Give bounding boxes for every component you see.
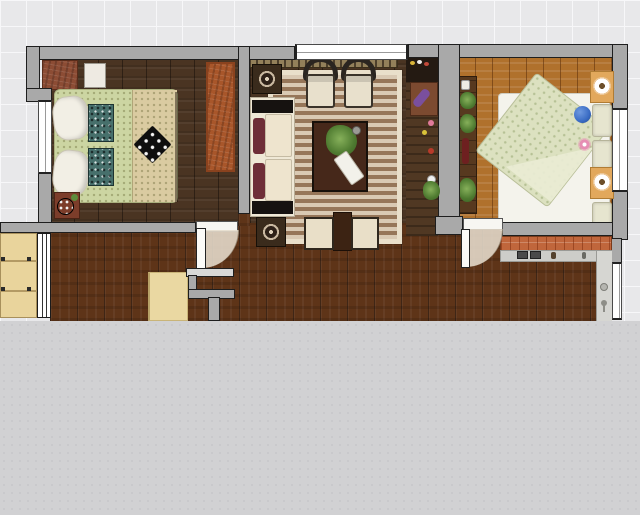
bed-left-footboard xyxy=(175,92,178,202)
wall-divider-lr-br xyxy=(438,44,460,218)
wardrobe-panel-line-2 xyxy=(0,290,37,292)
sideboard-red-dot xyxy=(428,148,434,154)
bedroom-right-window[interactable] xyxy=(612,108,628,192)
coffee-table-ashtray xyxy=(352,126,361,135)
wall-left-below-window xyxy=(38,172,52,224)
side-speaker-table-bottom[interactable] xyxy=(256,217,286,247)
entry-door-leaf[interactable] xyxy=(37,233,51,318)
bed-right-pillow-2 xyxy=(592,140,612,169)
sofa-armrest-top xyxy=(252,100,293,113)
pink-flower xyxy=(578,138,591,151)
wardrobe-knob-1 xyxy=(27,257,31,261)
wardrobe-knob-4 xyxy=(1,287,5,291)
table-lamp xyxy=(57,198,74,215)
bed-right-pillow-1 xyxy=(592,104,612,137)
rust-rug[interactable] xyxy=(206,62,235,172)
wall-divider-bl-lr xyxy=(238,46,250,214)
bed-left-pillow-top xyxy=(51,94,91,142)
counter-utensil-2 xyxy=(582,252,586,259)
cream-side-table[interactable] xyxy=(148,272,188,321)
wall-bedroom-left-bottom xyxy=(0,222,196,233)
stove-burner-1 xyxy=(517,251,528,259)
armchair-2-seat[interactable] xyxy=(344,74,373,108)
sideboard-trinket-yellow xyxy=(410,61,415,65)
wall-outer-right-mid xyxy=(612,190,628,240)
bed-left-cushion-top xyxy=(88,104,114,142)
floor-plan-canvas xyxy=(0,0,640,515)
wall-divider-foot xyxy=(435,216,463,235)
sideboard-pink-dot xyxy=(428,120,434,126)
wall-bedroom-right-bottom xyxy=(502,222,628,236)
sideboard-yellow-dot xyxy=(422,130,427,135)
sofa-armrest-bottom xyxy=(252,201,293,214)
sideboard-trinket-white xyxy=(417,60,422,64)
sink-drain xyxy=(600,283,608,291)
bed-left-cushion-bottom xyxy=(88,148,114,186)
flower-decor-bottom xyxy=(592,172,612,192)
living-room-window[interactable] xyxy=(295,44,408,60)
kitchen-window[interactable] xyxy=(612,262,622,320)
bedroom-left-window[interactable] xyxy=(38,100,52,174)
sofa-maroon-pillow-bottom xyxy=(253,163,265,199)
red-dresser[interactable] xyxy=(42,60,78,90)
sofa-seat-cushion-bottom xyxy=(265,159,292,201)
bedroom-left-door-leaf[interactable] xyxy=(196,228,206,269)
wardrobe-knob-3 xyxy=(1,257,5,261)
sideboard-plant xyxy=(423,181,440,200)
blue-ball[interactable] xyxy=(574,106,591,123)
counter-utensil-1 xyxy=(551,252,556,259)
white-nightstand[interactable] xyxy=(84,63,106,88)
ottoman-mid-table[interactable] xyxy=(333,212,352,251)
sideboard-trinket-red xyxy=(424,62,429,66)
side-speaker-table-top[interactable] xyxy=(252,64,282,94)
ottoman-1[interactable] xyxy=(304,217,334,250)
sofa-seat-cushion-top xyxy=(265,114,292,157)
hallway-floor-patch xyxy=(238,212,250,226)
sofa-maroon-pillow-top xyxy=(253,118,265,154)
wall-top-left xyxy=(26,46,295,60)
lamp-table-plant-dot xyxy=(71,194,78,201)
armchair-1-seat[interactable] xyxy=(306,74,335,108)
sink-faucet-stem xyxy=(603,305,605,312)
wardrobe-panel-line-1 xyxy=(0,260,37,262)
shelf-plant-1 xyxy=(460,92,476,109)
shelf-plant-3 xyxy=(459,178,476,202)
empty-canvas-area xyxy=(0,321,640,515)
wardrobe-knob-2 xyxy=(27,287,31,291)
partition-stub xyxy=(208,297,220,321)
stove-burner-2 xyxy=(530,251,541,259)
shelf-white-canister xyxy=(461,80,470,90)
shelf-red-vase xyxy=(462,138,469,164)
wall-outer-right-top xyxy=(612,44,628,110)
shelf-plant-2 xyxy=(460,114,476,133)
wardrobe[interactable] xyxy=(0,233,37,318)
bedroom-right-door-leaf[interactable] xyxy=(461,229,470,268)
flower-decor-top xyxy=(592,76,612,96)
ottoman-2[interactable] xyxy=(351,217,379,250)
